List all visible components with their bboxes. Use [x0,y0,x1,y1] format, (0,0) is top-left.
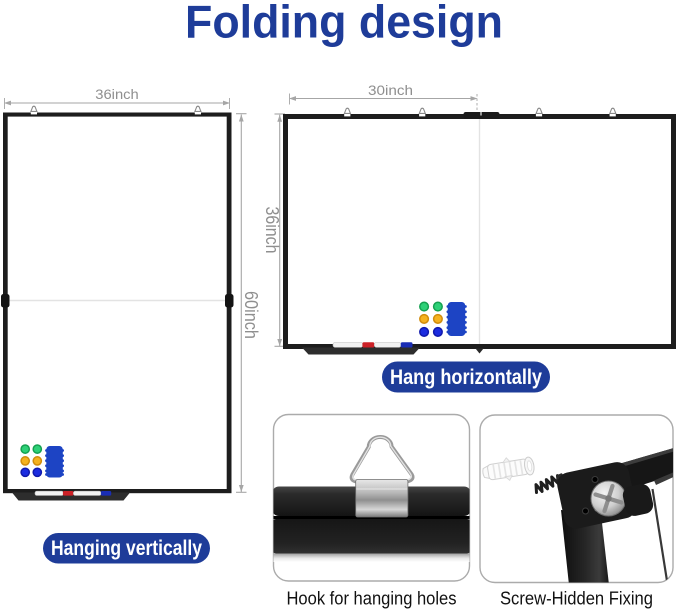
svg-text:30inch: 30inch [368,82,413,98]
svg-text:Screw-Hidden Fixing: Screw-Hidden Fixing [500,589,653,609]
svg-text:Hanging vertically: Hanging vertically [51,537,202,560]
svg-text:Hook for hanging holes: Hook for hanging holes [287,589,457,609]
svg-text:Hang horizontally: Hang horizontally [390,366,542,389]
svg-text:Folding design: Folding design [185,0,503,48]
svg-text:36inch: 36inch [95,86,139,102]
svg-text:60inch: 60inch [241,291,262,339]
